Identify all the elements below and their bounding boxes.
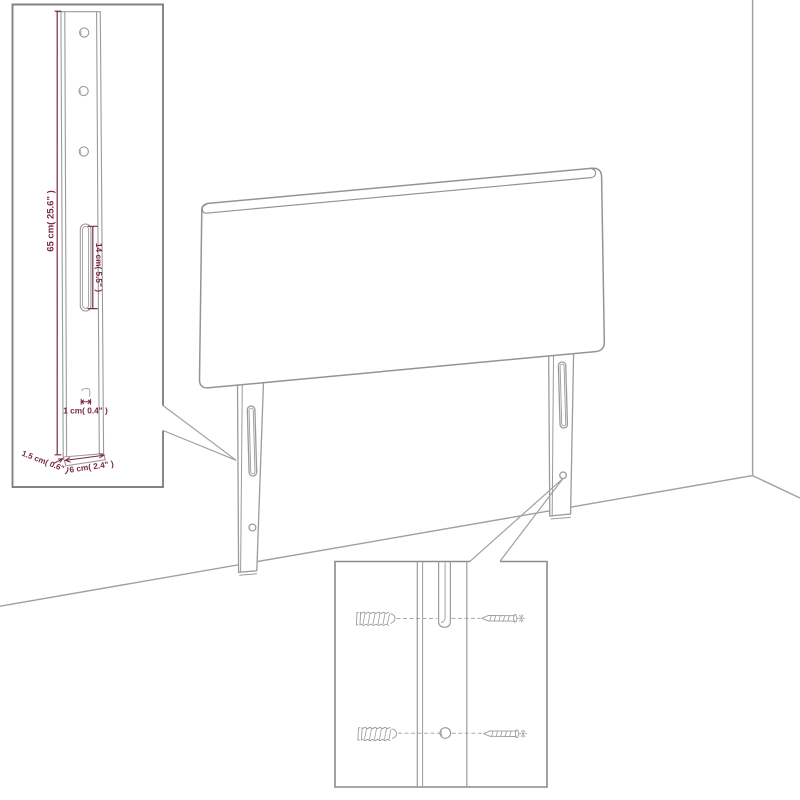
alignment-guides bbox=[397, 618, 483, 733]
leg-detail-slot bbox=[80, 224, 91, 311]
left-leg-bottom-line bbox=[239, 574, 257, 575]
screw-detail-slot bbox=[439, 562, 451, 628]
floor-line-left bbox=[0, 476, 753, 607]
headboard-assembly-diagram: 65 cm( 25.6" ) 14 cm( 5.5" ) 1 cm( 0.4" … bbox=[0, 0, 800, 800]
dim-label-edge: 1 cm( 0.4" ) bbox=[63, 406, 108, 416]
edge-cross-section-glyph bbox=[82, 389, 90, 397]
dimension-labels: 65 cm( 25.6" ) 14 cm( 5.5" ) 1 cm( 0.4" … bbox=[21, 190, 115, 475]
screw-top bbox=[482, 615, 525, 623]
diagram-canvas: 65 cm( 25.6" ) 14 cm( 5.5" ) 1 cm( 0.4" … bbox=[0, 0, 800, 800]
screw-bottom bbox=[484, 730, 527, 738]
wall-plug-top bbox=[356, 612, 395, 625]
screw-detail-hole bbox=[440, 728, 451, 739]
screw-detail-slot-inner bbox=[441, 562, 445, 623]
floor-line-right bbox=[753, 476, 800, 498]
leader-lines bbox=[163, 406, 563, 562]
leg-detail-slot-inner bbox=[83, 226, 89, 308]
headboard-outline bbox=[199, 168, 604, 388]
wall-plug-bottom bbox=[358, 727, 397, 740]
leg-detail-inset: 65 cm( 25.6" ) 14 cm( 5.5" ) 1 cm( 0.4" … bbox=[13, 5, 164, 488]
dim-arrow-1cm bbox=[81, 399, 90, 405]
leg-detail-holes bbox=[79, 28, 89, 156]
left-leg bbox=[238, 382, 264, 575]
headboard-panel bbox=[199, 168, 604, 388]
right-leg-bottom-line bbox=[551, 517, 571, 519]
screw-detail-inset bbox=[335, 562, 547, 788]
dim-label-width: 6 cm( 2.4" ) bbox=[69, 458, 115, 474]
leader-line-screw-detail bbox=[470, 479, 563, 562]
leader-line-leg-detail bbox=[163, 406, 236, 461]
leg-detail-drawing bbox=[56, 12, 105, 466]
screw-detail-inset-border bbox=[335, 562, 547, 788]
dim-label-slot: 14 cm( 5.5" ) bbox=[94, 243, 104, 292]
screw-detail-leg-strip bbox=[417, 562, 467, 788]
dim-label-height: 65 cm( 25.6" ) bbox=[46, 190, 57, 252]
